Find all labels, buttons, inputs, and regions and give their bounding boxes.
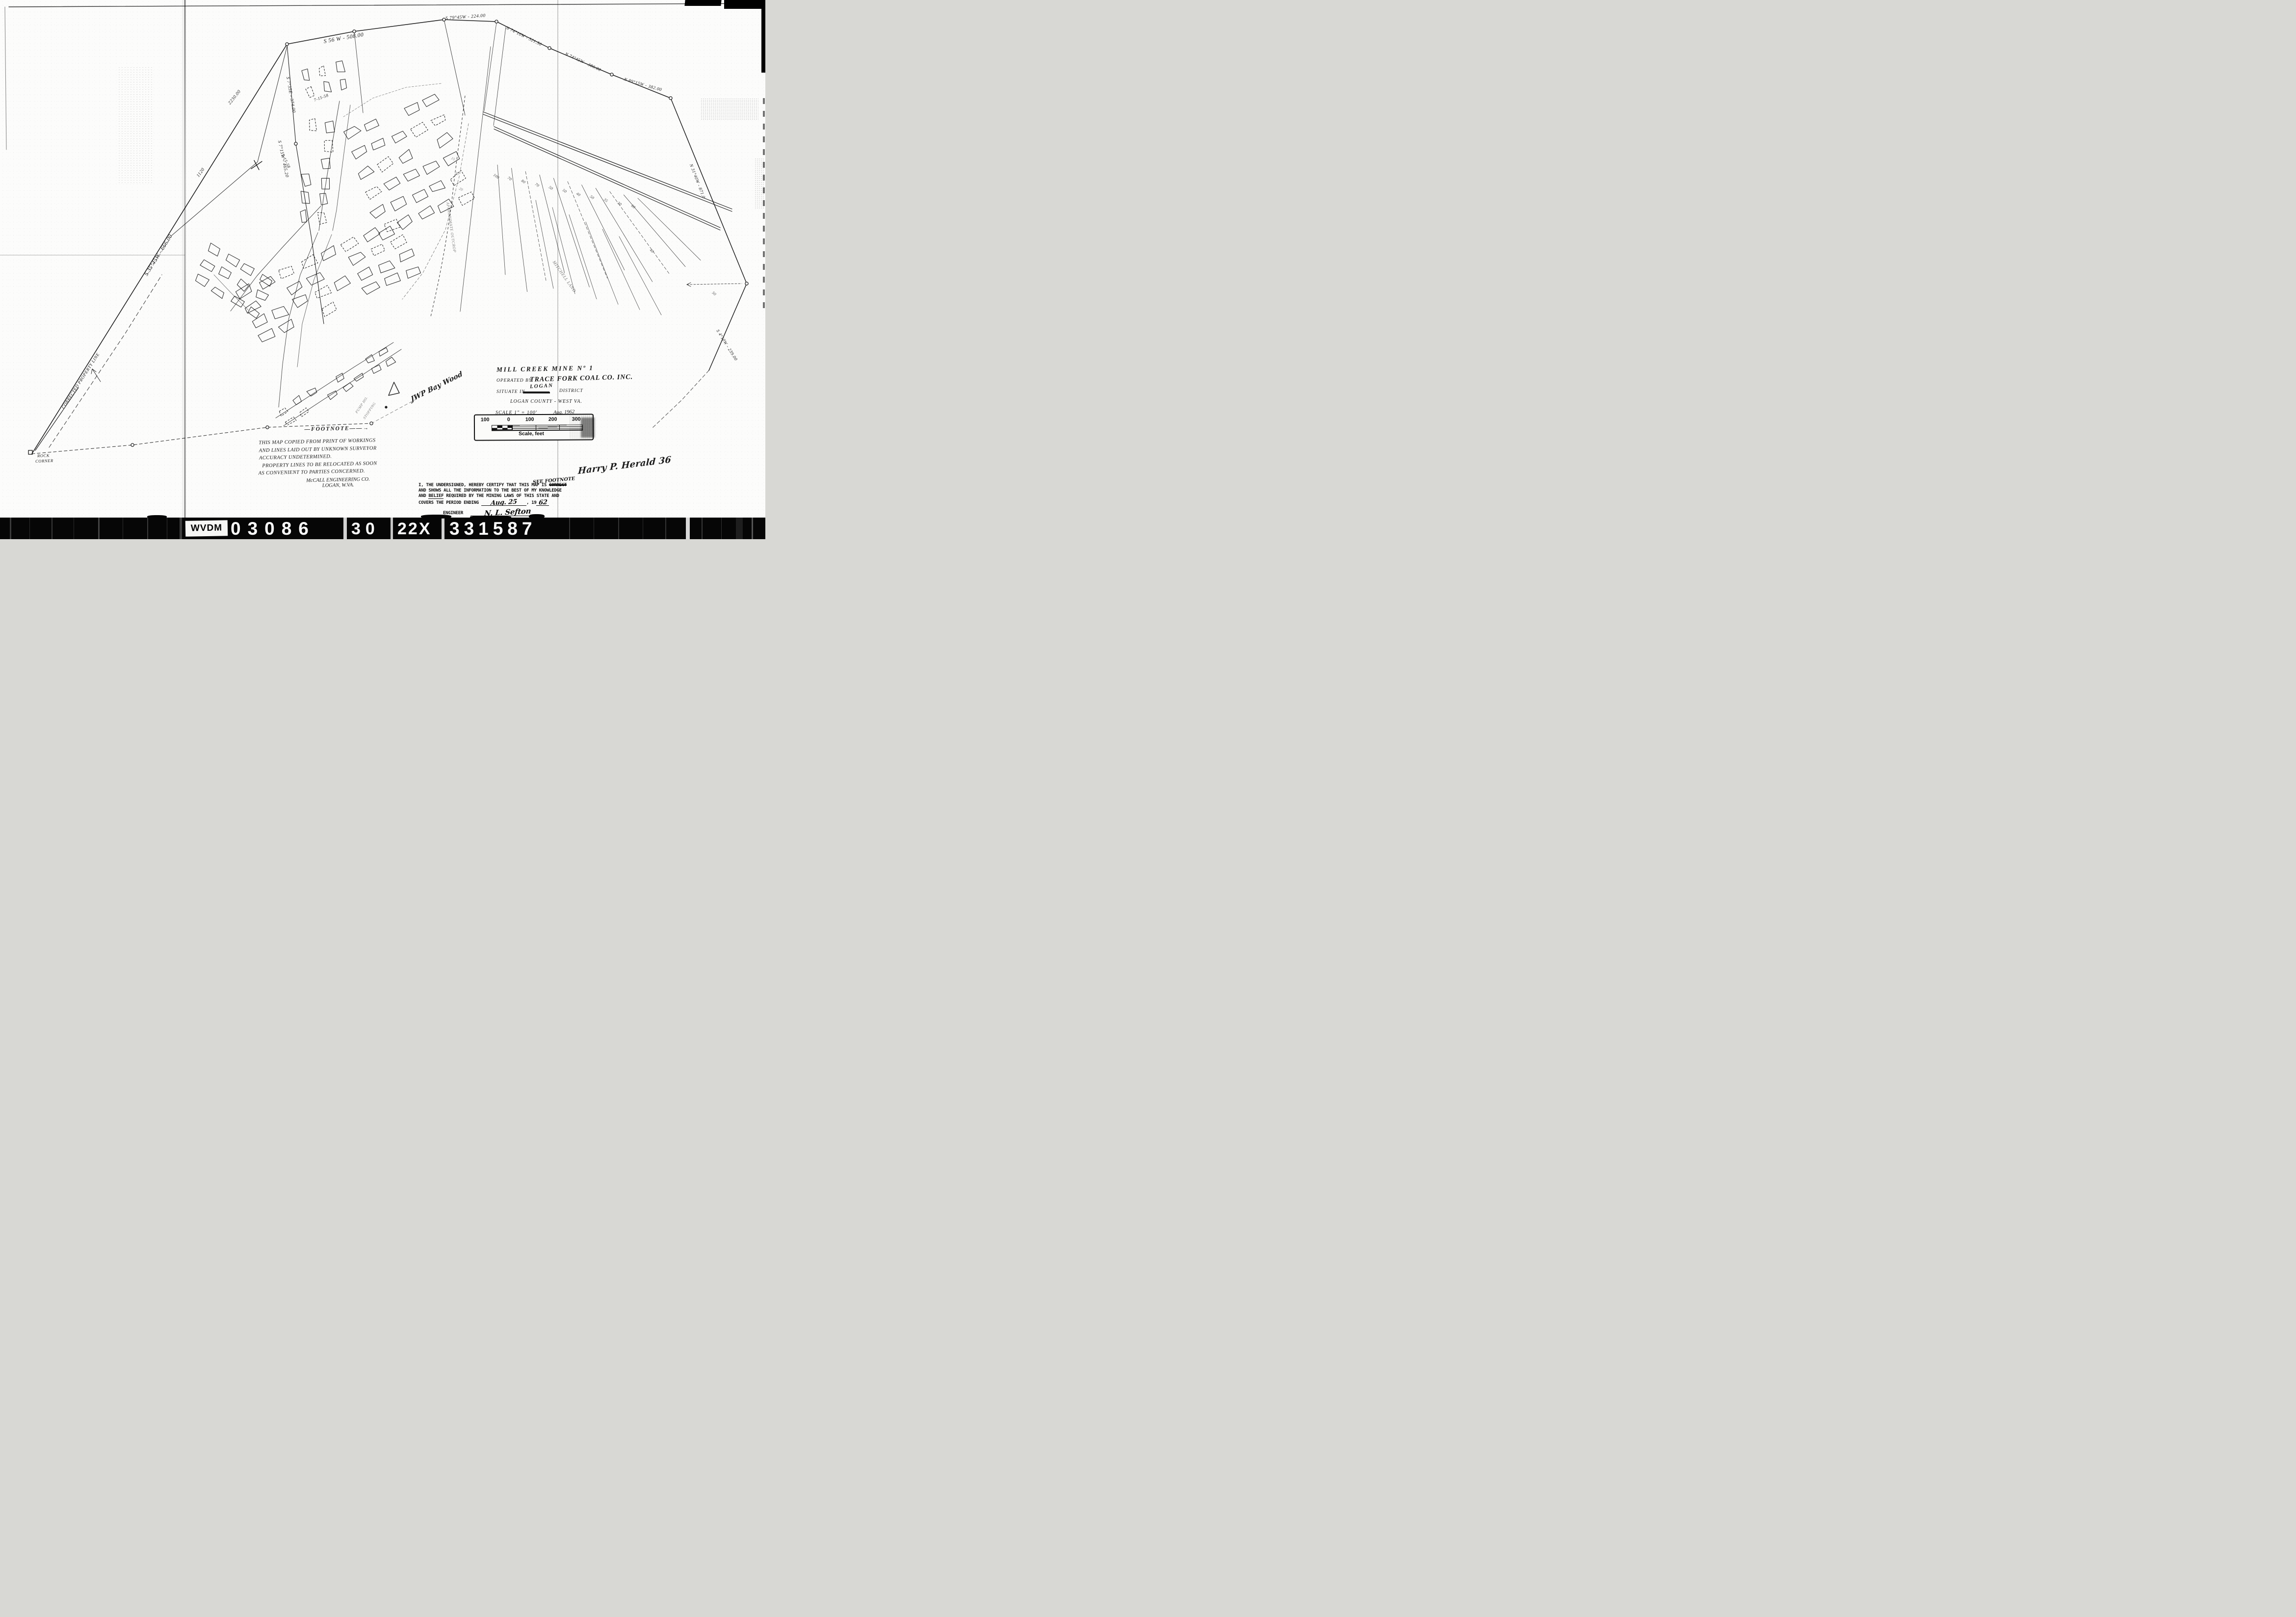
district-label: DISTRICT — [559, 389, 583, 393]
film-streak — [180, 518, 182, 539]
film-streak — [98, 518, 100, 539]
film-streak — [123, 518, 123, 539]
scale-tick: 100 — [481, 417, 490, 422]
situate-label: SITUATE IN — [496, 390, 525, 394]
scale-bar: 100 0 100 200 300 Scale, feet — [474, 414, 594, 441]
scale-tick: 200 — [548, 417, 557, 422]
scale-bar-checker — [492, 425, 512, 430]
cert-line: I, THE UNDERSIGNED, HEREBY CERTIFY THAT … — [418, 483, 580, 488]
film-streak — [52, 518, 52, 539]
scale-tick: 100 — [525, 417, 534, 422]
code-3: 331587 — [449, 519, 536, 539]
struck-word: CORRECT — [549, 483, 567, 488]
film-frame-gap — [686, 518, 690, 539]
cert-period-line: COVERS THE PERIOD ENDING Aug. 25, 1962 — [418, 499, 580, 506]
underlined-word: BELIEF — [428, 494, 444, 499]
scan-edge-bar — [724, 0, 765, 9]
film-streak — [736, 518, 743, 539]
cert-line: AND BELIEF REQUIRED BY THE MINING LAWS O… — [418, 494, 580, 499]
film-streak — [569, 518, 570, 539]
cert-line: AND SHOWS ALL THE INFORMATION TO THE BES… — [418, 488, 580, 494]
footnote-block: —FOOTNOTE——→ THIS MAP COPIED FROM PRINT … — [259, 424, 417, 490]
engineer-line: ENGINEER N. L. Sefton — [443, 509, 580, 516]
scan-smudge — [581, 417, 595, 438]
scan-artifact — [147, 515, 167, 519]
scale-bar-section — [536, 425, 559, 430]
film-streak — [167, 518, 167, 539]
scan-artifact — [421, 515, 451, 519]
scratched-out-word: ▬▬▬▬▬▬ — [523, 390, 549, 395]
film-streak — [147, 518, 148, 539]
film-frame-gap — [442, 518, 444, 539]
film-streak — [29, 518, 30, 539]
film-streak — [643, 518, 643, 539]
film-streak — [665, 518, 666, 539]
scan-edge-dashes — [763, 98, 765, 314]
archive-film-strip: WVDM 03086 30 22X 331587 — [0, 518, 765, 539]
film-streak — [10, 518, 11, 539]
map-annotation: ROCK — [37, 453, 50, 458]
period-ending-field: Aug. 25 — [481, 499, 526, 506]
scan-edge-bar — [684, 0, 721, 6]
scan-edge-bar — [761, 0, 765, 73]
scan-artifact — [529, 514, 545, 519]
film-streak — [752, 518, 753, 539]
year-field: 62 — [536, 499, 549, 506]
film-frame-gap — [343, 518, 347, 539]
scale-bar-section — [512, 425, 536, 430]
county-line: LOGAN COUNTY - WEST VA. — [510, 399, 582, 404]
film-streak — [702, 518, 703, 539]
code-2: 22X — [397, 520, 432, 539]
scan-artifact — [470, 516, 511, 519]
film-streak — [618, 518, 619, 539]
operated-by-label: OPERATED BY — [496, 378, 532, 383]
film-streak — [721, 518, 722, 539]
film-streak — [594, 518, 594, 539]
document-number: 03086 — [231, 519, 315, 539]
scale-tick: 0 — [507, 417, 510, 422]
district-handwritten: LOGAN — [530, 383, 553, 390]
film-streak — [74, 518, 74, 539]
scanned-mine-map-sheet: S 35°45W - 666.00CORRECTED PROPERTY LINE… — [0, 0, 765, 539]
code-1: 30 — [351, 520, 380, 539]
map-annotation: CORNER — [35, 459, 53, 464]
film-frame-gap — [391, 518, 393, 539]
certification-block: I, THE UNDERSIGNED, HEREBY CERTIFY THAT … — [418, 483, 580, 516]
agency-label-box: WVDM — [185, 520, 228, 536]
